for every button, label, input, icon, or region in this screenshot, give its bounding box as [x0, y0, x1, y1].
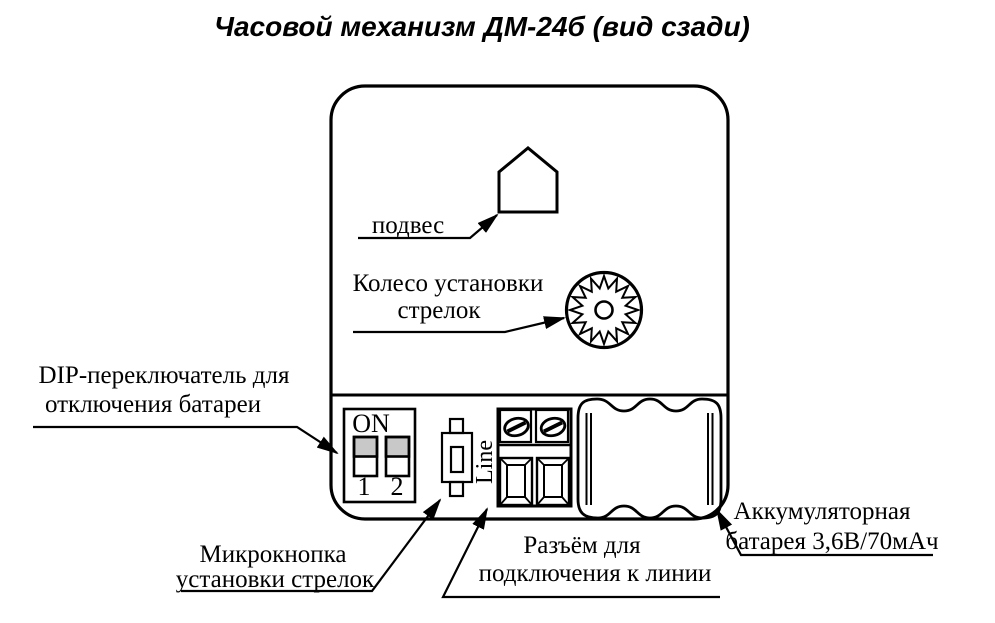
line-marking: Line	[472, 440, 498, 484]
wire-opening-left-inner	[507, 465, 525, 497]
dip-leader-arrow	[33, 427, 337, 453]
wheel-teeth	[570, 276, 638, 344]
dip-switch-1-knob	[354, 437, 377, 457]
hands-setting-wheel	[567, 273, 642, 348]
dip-pos1-label: 1	[358, 472, 371, 501]
microbutton-label-line1: Микрокнопка	[199, 541, 346, 568]
clock-mechanism-diagram: Часовой механизм ДМ-24б (вид сзади) ON 1…	[0, 0, 995, 623]
wheel-rim	[567, 273, 642, 348]
microbutton	[442, 419, 472, 496]
dip-on-label: ON	[352, 409, 390, 438]
hands-wheel-label-line2: стрелок	[397, 297, 481, 324]
microbutton-body	[442, 433, 472, 482]
dip-pos2-label: 2	[391, 472, 404, 501]
battery-label-line2: батарея 3,6В/70мАч	[725, 528, 938, 555]
hanger-shape	[499, 148, 557, 212]
dip-switch-2-knob	[386, 437, 409, 457]
hands-wheel-label-line1: Колесо установки	[353, 270, 544, 297]
microbutton-bottom-tab	[450, 482, 463, 496]
callout-line-connector: Разъём для подключения к линии	[443, 509, 720, 597]
battery-label-line1: Аккумуляторная	[734, 498, 911, 525]
dip-label-line1: DIP-переключатель для	[39, 362, 290, 389]
connector-label-line1: Разъём для	[523, 532, 641, 559]
wheel-hub	[596, 302, 613, 319]
microbutton-label-line2: установки стрелок	[176, 566, 375, 593]
microbutton-plunger	[451, 447, 463, 472]
callout-microbutton: Микрокнопка установки стрелок	[176, 500, 440, 593]
callout-hanger: подвес	[358, 212, 497, 239]
dip-switch: ON 1 2	[344, 409, 415, 502]
hanger-label: подвес	[372, 212, 444, 239]
terminal-block	[498, 409, 571, 506]
callout-dip-switch: DIP-переключатель для отключения батареи	[33, 362, 337, 453]
microbutton-top-tab	[450, 419, 463, 433]
callout-battery: Аккумуляторная батарея 3,6В/70мАч	[717, 498, 939, 555]
battery-outline	[578, 399, 721, 518]
screw-slot-right	[544, 423, 562, 432]
diagram-title: Часовой механизм ДМ-24б (вид сзади)	[214, 11, 750, 42]
callout-hands-wheel: Колесо установки стрелок	[353, 270, 564, 332]
diagram-canvas: Часовой механизм ДМ-24б (вид сзади) ON 1…	[0, 0, 995, 623]
wire-opening-right-inner	[544, 465, 562, 497]
connector-label-line2: подключения к линии	[479, 560, 712, 587]
dip-label-line2: отключения батареи	[45, 391, 261, 418]
screw-slot-left	[507, 423, 525, 432]
battery	[578, 399, 721, 518]
